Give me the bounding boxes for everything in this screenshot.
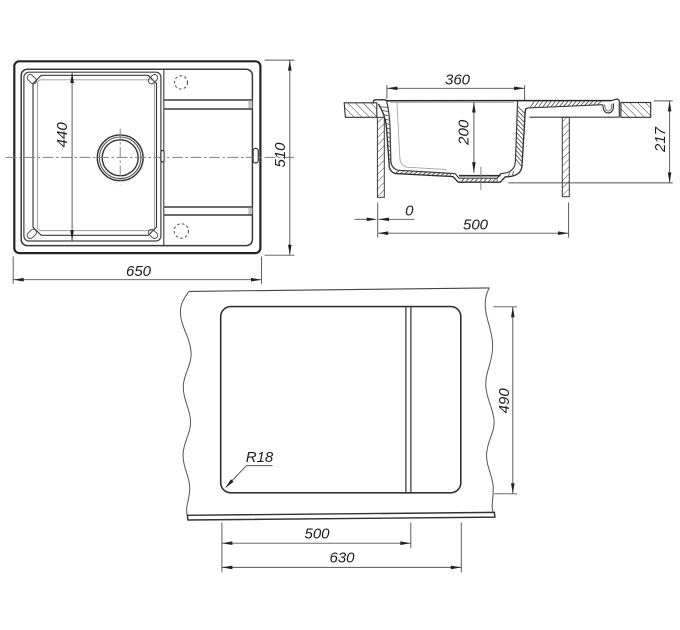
svg-text:0: 0 bbox=[405, 202, 414, 219]
svg-text:630: 630 bbox=[329, 550, 355, 567]
svg-text:217: 217 bbox=[652, 126, 669, 153]
svg-text:510: 510 bbox=[272, 142, 289, 168]
svg-text:650: 650 bbox=[126, 263, 152, 280]
svg-text:R18: R18 bbox=[246, 449, 274, 466]
svg-text:360: 360 bbox=[445, 71, 471, 88]
svg-text:500: 500 bbox=[463, 217, 489, 234]
svg-text:200: 200 bbox=[456, 119, 473, 146]
svg-text:490: 490 bbox=[496, 388, 513, 414]
svg-text:500: 500 bbox=[304, 526, 330, 543]
svg-text:440: 440 bbox=[54, 122, 71, 148]
